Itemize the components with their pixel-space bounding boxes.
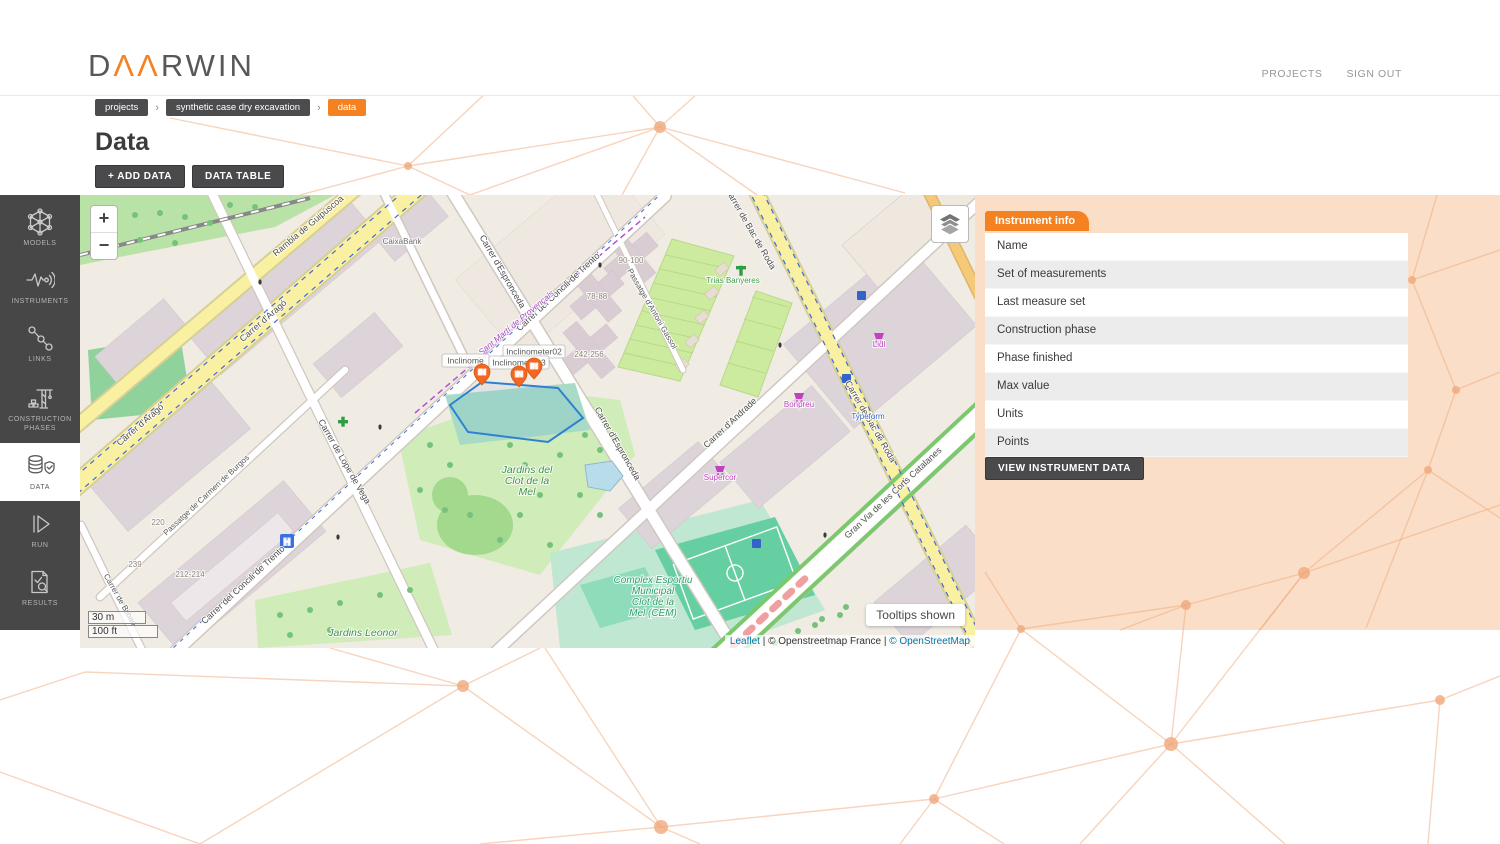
- logo-aa: ΛΛ: [113, 48, 160, 83]
- action-buttons: + ADD DATA DATA TABLE: [95, 165, 284, 188]
- instrument-info-tab: Instrument info: [985, 211, 1089, 231]
- breadcrumb: projects › synthetic case dry excavation…: [95, 99, 366, 116]
- attribution-link[interactable]: Leaflet: [730, 636, 760, 647]
- map-attribution: Leaflet | © Openstreetmap France | © Ope…: [725, 635, 975, 648]
- sidebar-item-label: INSTRUMENTS: [5, 298, 75, 307]
- map-label: 242-256: [574, 350, 604, 359]
- breadcrumb-separator: ›: [155, 102, 159, 114]
- map-canvas: H Rambla de GuipúscoaCarrer d'AragóCarre…: [80, 195, 975, 648]
- sidebar-item-label: DATA: [5, 484, 75, 493]
- instrument-info-row[interactable]: Phase finished: [985, 345, 1408, 373]
- layers-icon: [938, 212, 962, 236]
- links-icon: [25, 323, 55, 353]
- sidebar-item-label: MODELS: [5, 240, 75, 249]
- map-label: Typeform: [851, 412, 885, 421]
- data-table-button[interactable]: DATA TABLE: [192, 165, 284, 188]
- sidebar-item-label: LINKS: [5, 356, 75, 365]
- top-nav: PROJECTS SIGN OUT: [1262, 68, 1402, 80]
- map-label: 90-100: [619, 256, 644, 265]
- crane-icon: [25, 383, 55, 413]
- map-label: Lidl: [873, 340, 886, 349]
- map-label: Supercor: [704, 473, 737, 482]
- sidebar-item-run[interactable]: RUN: [0, 501, 80, 559]
- instrument-info-row[interactable]: Last measure set: [985, 289, 1408, 317]
- sidebar-item-data[interactable]: DATA: [0, 443, 80, 501]
- svg-text:IN: IN: [478, 368, 486, 377]
- instrument-info-row[interactable]: Set of measurements: [985, 261, 1408, 289]
- tooltips-badge: Tooltips shown: [866, 604, 965, 626]
- map-label: 78-88: [587, 292, 608, 301]
- sidebar-item-links[interactable]: LINKS: [0, 315, 80, 373]
- sidebar-item-label: CONSTRUCTION PHASES: [5, 416, 75, 434]
- models-icon: [25, 207, 55, 237]
- breadcrumb-projects[interactable]: projects: [95, 99, 148, 116]
- instrument-info-row[interactable]: Name: [985, 233, 1408, 261]
- map-label: 220: [151, 518, 165, 527]
- view-instrument-data-button[interactable]: VIEW INSTRUMENT DATA: [985, 457, 1144, 480]
- zoom-control: + −: [90, 205, 118, 260]
- results-icon: [25, 567, 55, 597]
- data-shield-icon: [25, 451, 55, 481]
- svg-text:IN: IN: [515, 370, 523, 379]
- sidebar-item-construction-phases[interactable]: CONSTRUCTION PHASES: [0, 373, 80, 443]
- svg-text:Inclinome: Inclinome: [447, 356, 484, 366]
- sidebar-item-results[interactable]: RESULTS: [0, 559, 80, 617]
- map-label: CaixaBank: [383, 237, 423, 246]
- instrument-info-row[interactable]: Units: [985, 401, 1408, 429]
- sidebar: MODELS INSTRUMENTS LINKS CONSTRUCTION PH…: [0, 195, 80, 630]
- map-label: Jardins Leonor: [327, 627, 398, 639]
- attribution-link[interactable]: © OpenStreetMap: [889, 636, 970, 647]
- instruments-icon: [25, 265, 55, 295]
- map-label: Trias Banyeres: [706, 276, 760, 285]
- breadcrumb-current[interactable]: data: [328, 99, 367, 116]
- sidebar-item-label: RESULTS: [5, 600, 75, 609]
- scale-control: 30 m 100 ft: [88, 611, 158, 638]
- app-logo: DΛΛRWIN: [88, 48, 255, 84]
- layers-control[interactable]: [931, 205, 969, 243]
- zoom-out-button[interactable]: −: [91, 233, 117, 259]
- scale-metric: 30 m: [88, 611, 146, 624]
- svg-text:Inclinometer02: Inclinometer02: [506, 347, 562, 357]
- run-icon: [25, 509, 55, 539]
- nav-sign-out[interactable]: SIGN OUT: [1346, 68, 1402, 80]
- nav-projects[interactable]: PROJECTS: [1262, 68, 1323, 80]
- scale-imperial: 100 ft: [88, 625, 158, 638]
- header: DΛΛRWIN PROJECTS SIGN OUT: [0, 0, 1500, 96]
- breadcrumb-separator: ›: [317, 102, 321, 114]
- sidebar-item-label: RUN: [5, 542, 75, 551]
- hotel-icon: H: [280, 534, 294, 548]
- logo-d: D: [88, 48, 113, 83]
- attribution-text: © Openstreetmap France: [768, 636, 881, 647]
- sidebar-item-instruments[interactable]: INSTRUMENTS: [0, 257, 80, 315]
- map[interactable]: H Rambla de GuipúscoaCarrer d'AragóCarre…: [80, 195, 975, 648]
- logo-rwin: RWIN: [161, 48, 255, 83]
- map-label: Bonpreu: [784, 400, 814, 409]
- breadcrumb-project-name[interactable]: synthetic case dry excavation: [166, 99, 310, 116]
- sidebar-item-models[interactable]: MODELS: [0, 199, 80, 257]
- svg-text:IN: IN: [530, 362, 538, 371]
- map-label: 239: [128, 560, 142, 569]
- instrument-info-panel: Instrument info NameSet of measurementsL…: [975, 195, 1500, 630]
- add-data-button[interactable]: + ADD DATA: [95, 165, 185, 188]
- attribution-text: |: [760, 636, 768, 647]
- instrument-info-row[interactable]: Points: [985, 429, 1408, 457]
- map-label: 212-214: [175, 570, 205, 579]
- instrument-info-row[interactable]: Construction phase: [985, 317, 1408, 345]
- svg-text:H: H: [284, 537, 291, 547]
- zoom-in-button[interactable]: +: [91, 206, 117, 233]
- page-title: Data: [95, 128, 149, 157]
- instrument-info-row[interactable]: Max value: [985, 373, 1408, 401]
- instrument-info-table: NameSet of measurementsLast measure setC…: [985, 233, 1408, 457]
